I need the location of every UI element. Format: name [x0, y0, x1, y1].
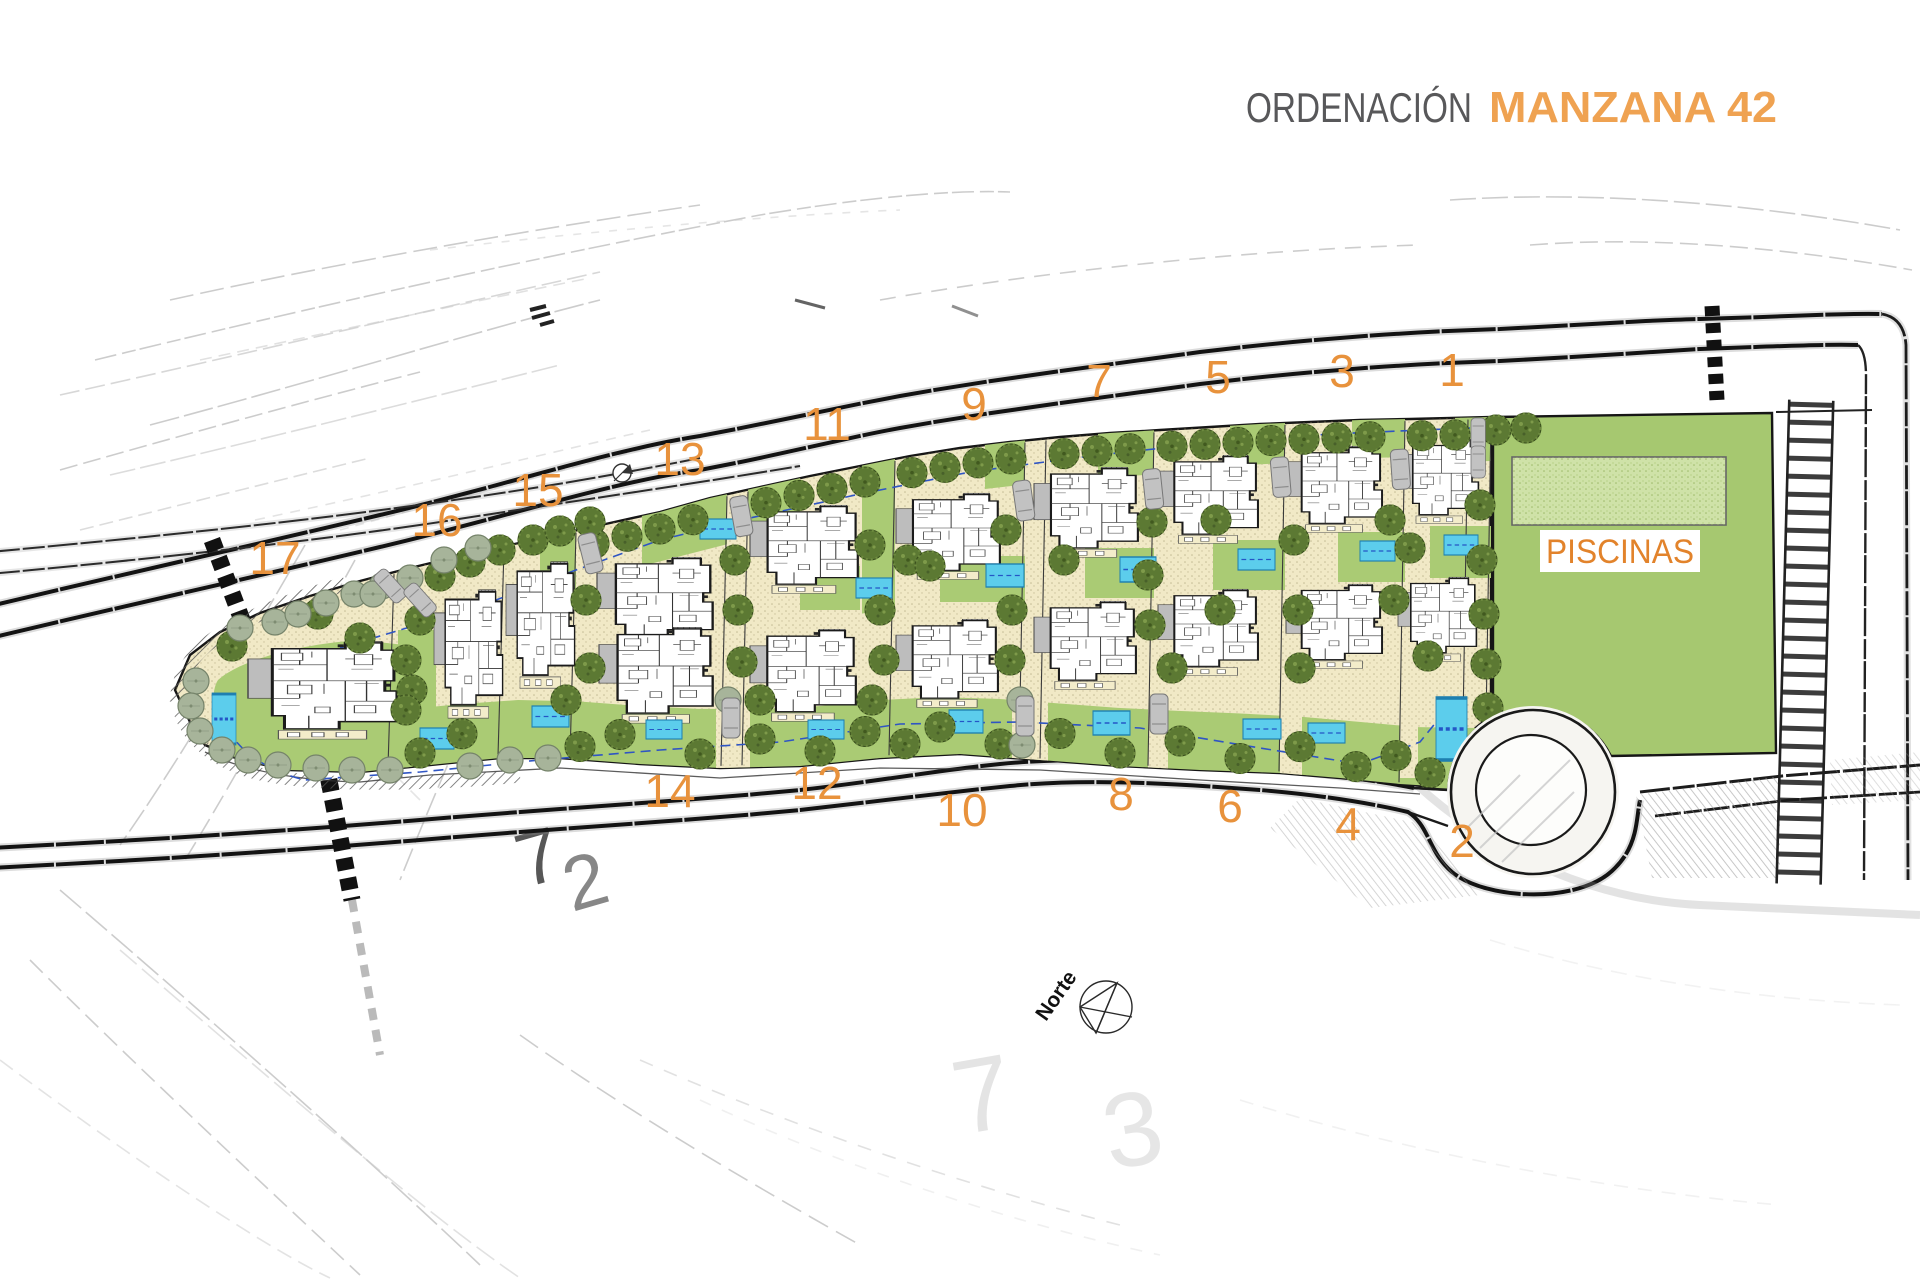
svg-text:4: 4 — [1335, 798, 1361, 850]
svg-text:10: 10 — [936, 784, 987, 836]
svg-text:16: 16 — [411, 494, 462, 546]
svg-text:MANZANA 42: MANZANA 42 — [1489, 83, 1777, 132]
svg-text:15: 15 — [512, 464, 563, 516]
svg-text:6: 6 — [1217, 780, 1243, 832]
svg-text:5: 5 — [1205, 351, 1231, 403]
svg-text:12: 12 — [791, 757, 842, 809]
svg-text:14: 14 — [644, 765, 695, 817]
svg-text:17: 17 — [249, 532, 300, 584]
svg-text:1: 1 — [1439, 344, 1465, 396]
svg-text:PISCINAS: PISCINAS — [1546, 533, 1694, 571]
svg-text:7: 7 — [1086, 355, 1112, 407]
svg-text:13: 13 — [654, 433, 705, 485]
svg-text:9: 9 — [961, 378, 987, 430]
svg-text:3: 3 — [1329, 345, 1355, 397]
svg-text:2: 2 — [1449, 815, 1475, 867]
svg-text:11: 11 — [803, 398, 851, 450]
svg-text:ORDENACIÓN: ORDENACIÓN — [1246, 84, 1472, 131]
svg-text:8: 8 — [1108, 768, 1134, 820]
